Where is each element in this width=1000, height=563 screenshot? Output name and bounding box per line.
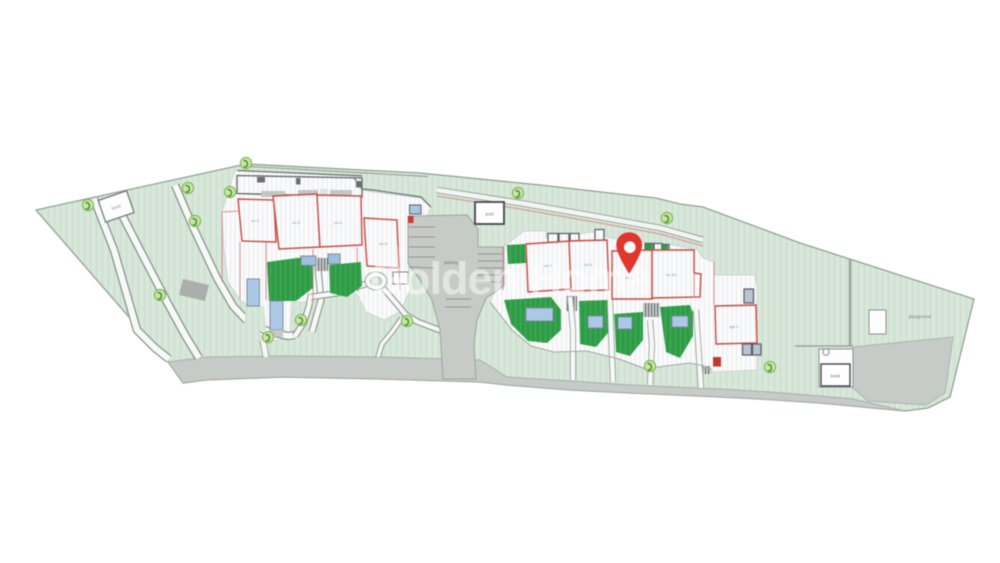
svg-text:playground: playground (909, 314, 932, 319)
svg-text:Golden Home: Golden Home (369, 253, 651, 304)
svg-text:no 4: no 4 (334, 220, 343, 225)
svg-text:no 10: no 10 (666, 272, 677, 277)
svg-text:pool: pool (486, 212, 494, 217)
svg-text:no 2: no 2 (251, 218, 260, 223)
svg-text:kiosk: kiosk (831, 374, 841, 379)
svg-text:no 3: no 3 (292, 220, 301, 225)
svg-text:no 5: no 5 (379, 241, 388, 246)
svg-text:apt 1: apt 1 (730, 324, 740, 329)
